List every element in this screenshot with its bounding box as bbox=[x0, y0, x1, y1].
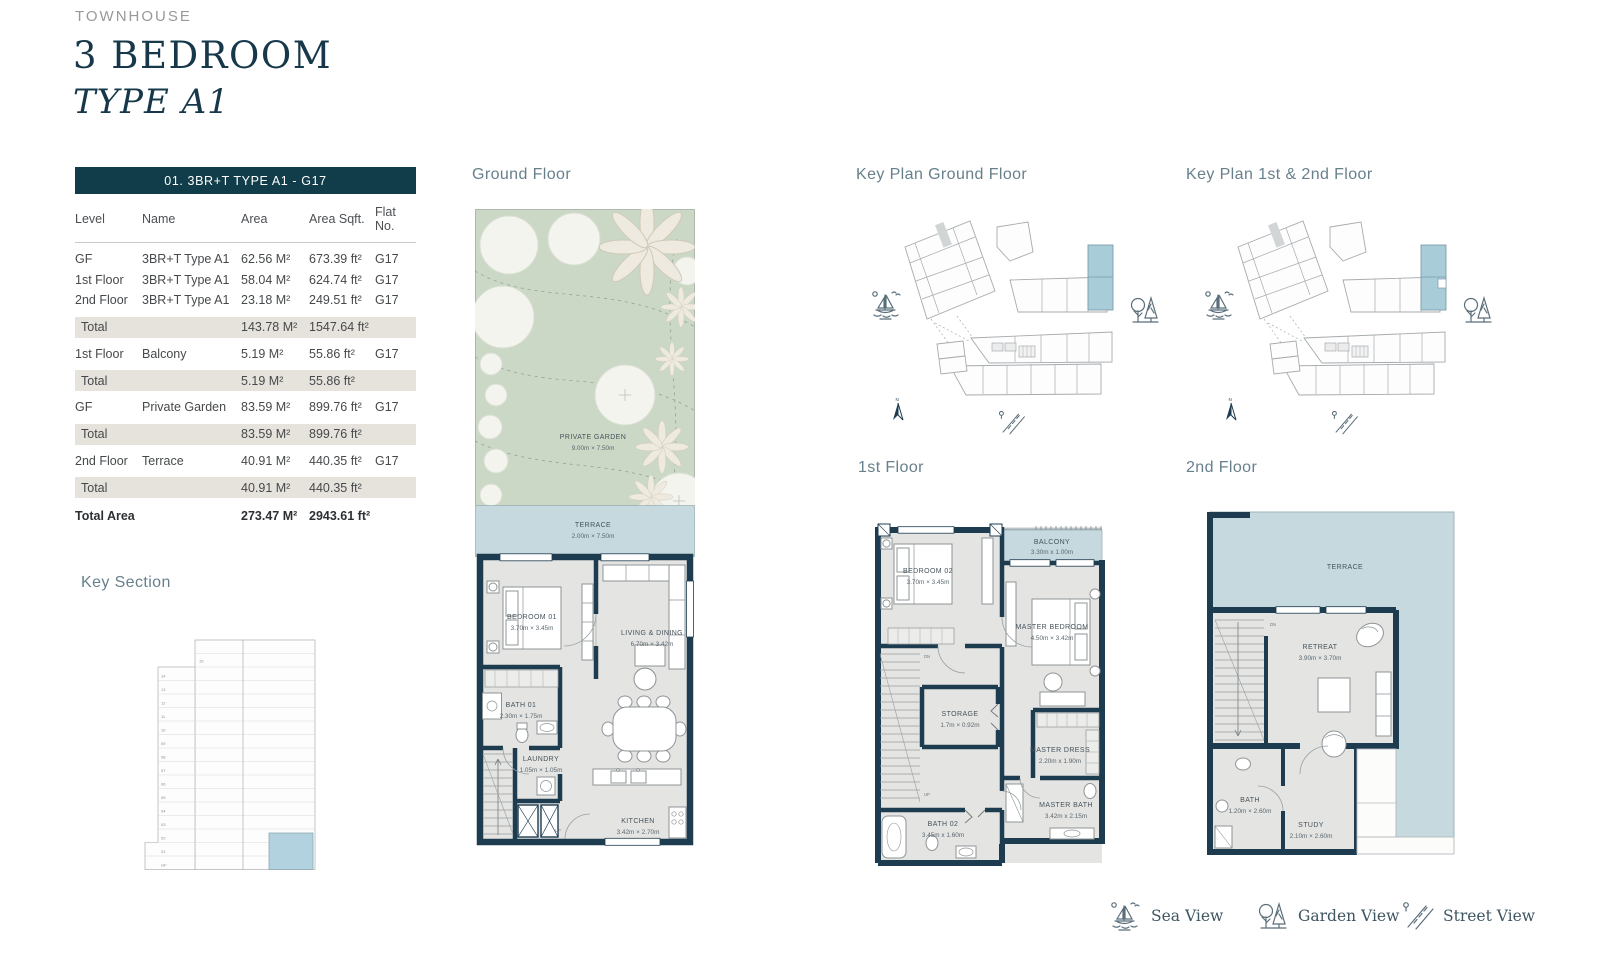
table-header-row: Level Name Area Area Sqft. Flat No. bbox=[75, 194, 416, 243]
cell: G17 bbox=[375, 293, 416, 307]
table-row: 1st Floor3BR+T Type A158.04 M²624.74 ft²… bbox=[75, 270, 416, 291]
key-section-highlight-unit bbox=[269, 833, 313, 870]
terrace-dims: 2.00m × 7.50m bbox=[572, 533, 615, 540]
cell: 440.35 ft² bbox=[309, 454, 375, 468]
cell: 3BR+T Type A1 bbox=[142, 273, 241, 287]
living-label: LIVING & DINING bbox=[621, 630, 683, 637]
laundry-fixtures bbox=[537, 777, 555, 795]
cell: Total bbox=[75, 320, 142, 334]
cell: 2943.61 ft² bbox=[309, 509, 375, 523]
balcony-label: BALCONY bbox=[1034, 539, 1070, 546]
cell: 143.78 M² bbox=[241, 320, 309, 334]
cell: Total bbox=[75, 427, 142, 441]
table-row-total: Total83.59 M²899.76 ft² bbox=[75, 424, 416, 445]
table-row: GFPrivate Garden83.59 M²899.76 ft²G17 bbox=[75, 397, 416, 418]
key-plan-ground-floor bbox=[855, 195, 1165, 445]
cell: 58.04 M² bbox=[241, 273, 309, 287]
key-plan-ground-heading: Key Plan Ground Floor bbox=[856, 166, 1027, 184]
cell: 83.59 M² bbox=[241, 427, 309, 441]
table-row: GF3BR+T Type A162.56 M²673.39 ft²G17 bbox=[75, 249, 416, 270]
cell: 1st Floor bbox=[75, 347, 142, 361]
terrace-label: TERRACE bbox=[1327, 564, 1363, 571]
svg-text:07: 07 bbox=[161, 768, 166, 773]
cell: 83.59 M² bbox=[241, 400, 309, 414]
storage-label: STORAGE bbox=[942, 711, 979, 718]
svg-text:12: 12 bbox=[161, 701, 166, 706]
bath01-label: BATH 01 bbox=[506, 702, 537, 709]
legend-sea-view: Sea View bbox=[1108, 900, 1223, 932]
second-floor-heading: 2nd Floor bbox=[1186, 459, 1257, 477]
master-bath-dims: 3.42m x 2.15m bbox=[1045, 813, 1087, 820]
key-plan-upper-floors bbox=[1188, 195, 1498, 445]
dn-label: DN bbox=[1270, 622, 1276, 627]
legend-street-label: Street View bbox=[1443, 907, 1535, 925]
svg-text:GF: GF bbox=[161, 863, 167, 868]
cell: Balcony bbox=[142, 347, 241, 361]
wardrobe bbox=[982, 538, 993, 604]
svg-text:09: 09 bbox=[161, 741, 166, 746]
svg-text:13: 13 bbox=[161, 687, 166, 692]
svg-text:14: 14 bbox=[161, 674, 166, 679]
legend-garden-view: Garden View bbox=[1255, 900, 1399, 932]
up-label: UP bbox=[555, 828, 561, 833]
legend-garden-label: Garden View bbox=[1298, 907, 1399, 925]
cell: GF bbox=[75, 252, 142, 266]
cell: 62.56 M² bbox=[241, 252, 309, 266]
north-arrow-icon bbox=[1226, 397, 1236, 420]
svg-text:04: 04 bbox=[161, 809, 166, 814]
first-floor-plan: BEDROOM 02 3.70m × 3.45m BALCONY 3.30m x… bbox=[870, 486, 1110, 870]
table-row-total: Total143.78 M²1547.64 ft² bbox=[75, 317, 416, 338]
cell: 3BR+T Type A1 bbox=[142, 252, 241, 266]
col-area: Area bbox=[241, 212, 309, 226]
ff-rooms: BEDROOM 02 3.70m × 3.45m BALCONY 3.30m x… bbox=[878, 524, 1102, 863]
second-floor-plan: TERRACE bbox=[1188, 486, 1460, 870]
cell: 3BR+T Type A1 bbox=[142, 293, 241, 307]
key-plan-upper-heading: Key Plan 1st & 2nd Floor bbox=[1186, 166, 1373, 184]
cell: 673.39 ft² bbox=[309, 252, 375, 266]
highlighted-unit bbox=[1088, 245, 1113, 310]
armchair bbox=[634, 668, 656, 690]
cell: 249.51 ft² bbox=[309, 293, 375, 307]
legend-sea-label: Sea View bbox=[1151, 907, 1223, 925]
master-dress-dims: 2.20m x 1.90m bbox=[1039, 758, 1081, 765]
cell: G17 bbox=[375, 252, 416, 266]
cell: 899.76 ft² bbox=[309, 427, 375, 441]
cell: 23.18 M² bbox=[241, 293, 309, 307]
cell: G17 bbox=[375, 400, 416, 414]
garden-view-icon bbox=[1132, 298, 1159, 322]
cell: 899.76 ft² bbox=[309, 400, 375, 414]
study-label: STUDY bbox=[1298, 822, 1324, 829]
ground-floor-plan: PRIVATE GARDEN 9.00m × 7.50m TERRACE 2.0… bbox=[475, 209, 695, 846]
col-flat: Flat No. bbox=[375, 205, 416, 233]
cell: 440.35 ft² bbox=[309, 481, 375, 495]
master-bed bbox=[1032, 589, 1100, 676]
cell: 55.86 ft² bbox=[309, 374, 375, 388]
north-arrow-icon bbox=[893, 397, 903, 420]
table-row: 2nd FloorTerrace40.91 M²440.35 ft²G17 bbox=[75, 451, 416, 472]
bedroom02-dims: 3.70m × 3.45m bbox=[907, 579, 950, 586]
private-garden-area: PRIVATE GARDEN 9.00m × 7.50m bbox=[475, 209, 695, 529]
cell: G17 bbox=[375, 273, 416, 287]
balcony-dims: 3.30m x 1.00m bbox=[1031, 549, 1073, 556]
cell: 1st Floor bbox=[75, 273, 142, 287]
bedroom02-label: BEDROOM 02 bbox=[903, 568, 953, 575]
cell: 2nd Floor bbox=[75, 293, 142, 307]
sea-view-icon bbox=[1108, 900, 1142, 932]
retreat-label: RETREAT bbox=[1303, 644, 1338, 651]
svg-text:05: 05 bbox=[161, 795, 166, 800]
street-view-icon bbox=[1332, 411, 1357, 433]
first-floor-heading: 1st Floor bbox=[858, 459, 924, 477]
cell: 40.91 M² bbox=[241, 454, 309, 468]
garden-label: PRIVATE GARDEN bbox=[560, 434, 626, 441]
sea-view-icon bbox=[873, 292, 900, 319]
bath02-dims: 3.45m x 1.60m bbox=[922, 832, 964, 839]
bath01-dims: 2.30m × 1.75m bbox=[500, 713, 543, 720]
svg-text:08: 08 bbox=[161, 755, 166, 760]
col-level: Level bbox=[75, 212, 142, 226]
svg-text:06: 06 bbox=[161, 782, 166, 787]
street-view-icon bbox=[999, 411, 1024, 433]
floorplan-sheet: N bbox=[0, 0, 1600, 956]
garden-dims: 9.00m × 7.50m bbox=[572, 445, 615, 452]
table-row: 1st FloorBalcony5.19 M²55.86 ft²G17 bbox=[75, 344, 416, 365]
bath02-label: BATH 02 bbox=[928, 821, 959, 828]
storage-dims: 1.7m × 0.92m bbox=[940, 722, 979, 729]
unit-spec-table: 01. 3BR+T TYPE A1 - G17 Level Name Area … bbox=[75, 167, 416, 528]
cell: Total Area bbox=[75, 509, 142, 523]
cell: Private Garden bbox=[142, 400, 241, 414]
master-bedroom-dims: 4.50m × 3.42m bbox=[1031, 635, 1074, 642]
gf-house: BEDROOM 01 3.70m × 3.45m LIVING & DINING… bbox=[480, 554, 694, 846]
cell: 1547.64 ft² bbox=[309, 320, 375, 334]
ground-floor-heading: Ground Floor bbox=[472, 166, 571, 184]
bedroom01-dims: 3.70m × 3.45m bbox=[511, 625, 554, 632]
highlighted-unit bbox=[1421, 245, 1446, 310]
cell: 5.19 M² bbox=[241, 347, 309, 361]
svg-text:10: 10 bbox=[161, 728, 166, 733]
closets bbox=[518, 805, 558, 837]
cell: GF bbox=[75, 400, 142, 414]
key-section-diagram: 15 14 13 12 11 10 09 08 07 06 05 04 03 0… bbox=[135, 618, 320, 871]
category-label: TOWNHOUSE bbox=[75, 8, 192, 25]
retreat-dims: 3.90m × 3.70m bbox=[1299, 655, 1342, 662]
sea-view-icon bbox=[1206, 292, 1233, 319]
table-row-total: Total40.91 M²440.35 ft² bbox=[75, 477, 416, 498]
garden-view-icon bbox=[1255, 900, 1289, 932]
key-section-heading: Key Section bbox=[81, 574, 171, 592]
master-bath-label: MASTER BATH bbox=[1039, 802, 1093, 809]
page-subtitle: TYPE A1 bbox=[73, 82, 230, 122]
svg-text:01: 01 bbox=[161, 849, 166, 854]
floor-label: 15 bbox=[199, 659, 204, 664]
cell: 40.91 M² bbox=[241, 481, 309, 495]
cell: 5.19 M² bbox=[241, 374, 309, 388]
wardrobe bbox=[582, 584, 593, 660]
street-view-icon bbox=[1400, 900, 1434, 932]
svg-text:02: 02 bbox=[161, 836, 166, 841]
terrace-label: TERRACE bbox=[575, 522, 611, 529]
garden-view-icon bbox=[1465, 298, 1492, 322]
master-dress-label: MASTER DRESS bbox=[1030, 747, 1090, 754]
laundry-dims: 1.05m × 1.05m bbox=[520, 767, 563, 774]
page-title: 3 BEDROOM bbox=[73, 36, 332, 77]
up-label: UP bbox=[924, 792, 930, 797]
table-title: 01. 3BR+T TYPE A1 - G17 bbox=[75, 167, 416, 194]
dn-label: DN bbox=[924, 654, 930, 659]
study-dims: 2.10m × 2.60m bbox=[1290, 833, 1333, 840]
table-row-grand-total: Total Area273.47 M²2943.61 ft² bbox=[75, 504, 416, 528]
svg-text:03: 03 bbox=[161, 822, 166, 827]
cell: Total bbox=[75, 374, 142, 388]
col-name: Name bbox=[142, 212, 241, 226]
cell: Total bbox=[75, 481, 142, 495]
laundry-label: LAUNDRY bbox=[523, 756, 559, 763]
kitchen-label: KITCHEN bbox=[621, 818, 655, 825]
sf-areas: TERRACE bbox=[1210, 512, 1454, 855]
col-sqft: Area Sqft. bbox=[309, 212, 375, 226]
cell: 2nd Floor bbox=[75, 454, 142, 468]
legend-street-view: Street View bbox=[1400, 900, 1535, 932]
master-wardrobe bbox=[1006, 582, 1016, 646]
cell: 624.74 ft² bbox=[309, 273, 375, 287]
cell: 273.47 M² bbox=[241, 509, 309, 523]
cell: G17 bbox=[375, 454, 416, 468]
gf-terrace-area: TERRACE 2.00m × 7.50m bbox=[476, 506, 695, 557]
bath-label: BATH bbox=[1240, 797, 1260, 804]
table-row-total: Total5.19 M²55.86 ft² bbox=[75, 370, 416, 391]
master-bedroom-label: MASTER BEDROOM bbox=[1016, 624, 1089, 631]
bath-dims: 1.20m × 2.60m bbox=[1229, 808, 1272, 815]
bedroom01-label: BEDROOM 01 bbox=[507, 614, 557, 621]
kitchen-dims: 3.42m × 2.70m bbox=[617, 829, 660, 836]
cell: Terrace bbox=[142, 454, 241, 468]
cell: G17 bbox=[375, 347, 416, 361]
living-dims: 6.70m × 3.42m bbox=[631, 641, 674, 648]
cell: 55.86 ft² bbox=[309, 347, 375, 361]
table-row: 2nd Floor3BR+T Type A123.18 M²249.51 ft²… bbox=[75, 290, 416, 311]
